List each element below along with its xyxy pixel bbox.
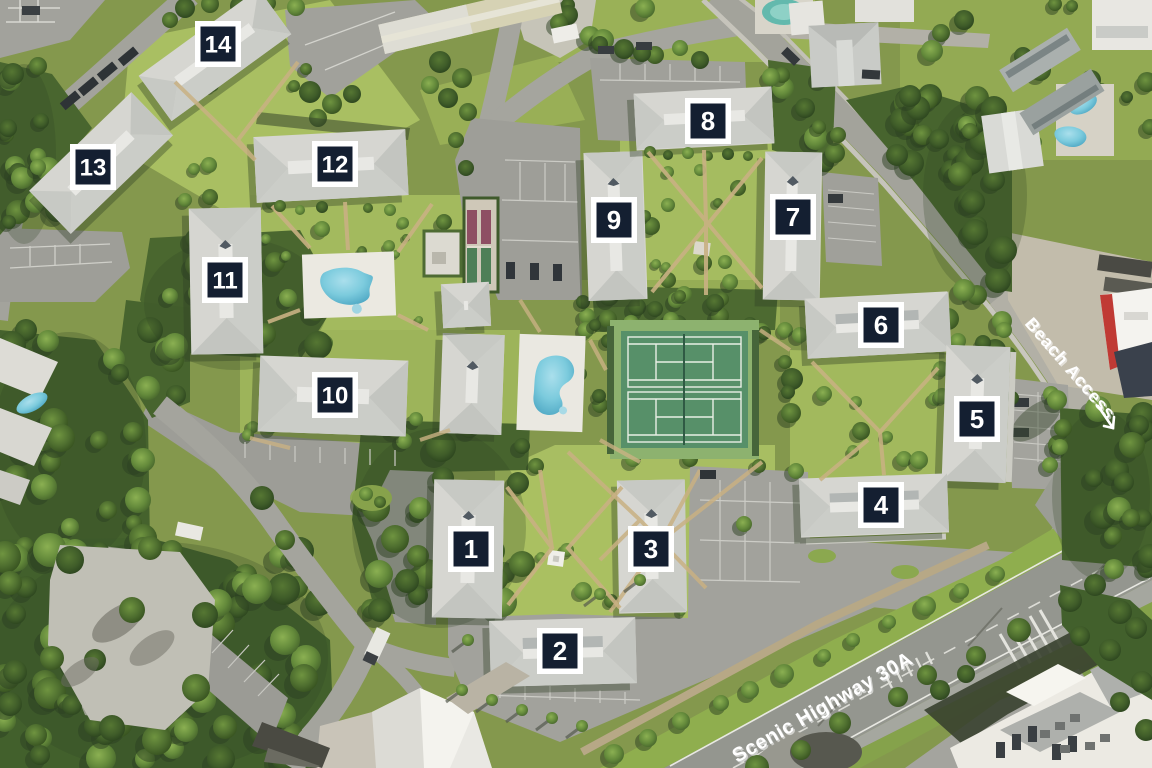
svg-text:5: 5	[970, 404, 984, 434]
svg-text:11: 11	[212, 268, 237, 295]
svg-text:4: 4	[874, 490, 889, 520]
svg-text:6: 6	[874, 310, 888, 340]
svg-text:7: 7	[786, 202, 800, 232]
svg-text:1: 1	[464, 534, 478, 564]
svg-text:8: 8	[701, 106, 715, 136]
svg-text:3: 3	[644, 534, 658, 564]
svg-text:10: 10	[322, 383, 349, 410]
svg-text:14: 14	[205, 32, 232, 59]
svg-text:12: 12	[322, 152, 349, 179]
svg-text:13: 13	[80, 155, 107, 182]
svg-text:9: 9	[607, 205, 621, 235]
svg-text:2: 2	[553, 636, 567, 666]
